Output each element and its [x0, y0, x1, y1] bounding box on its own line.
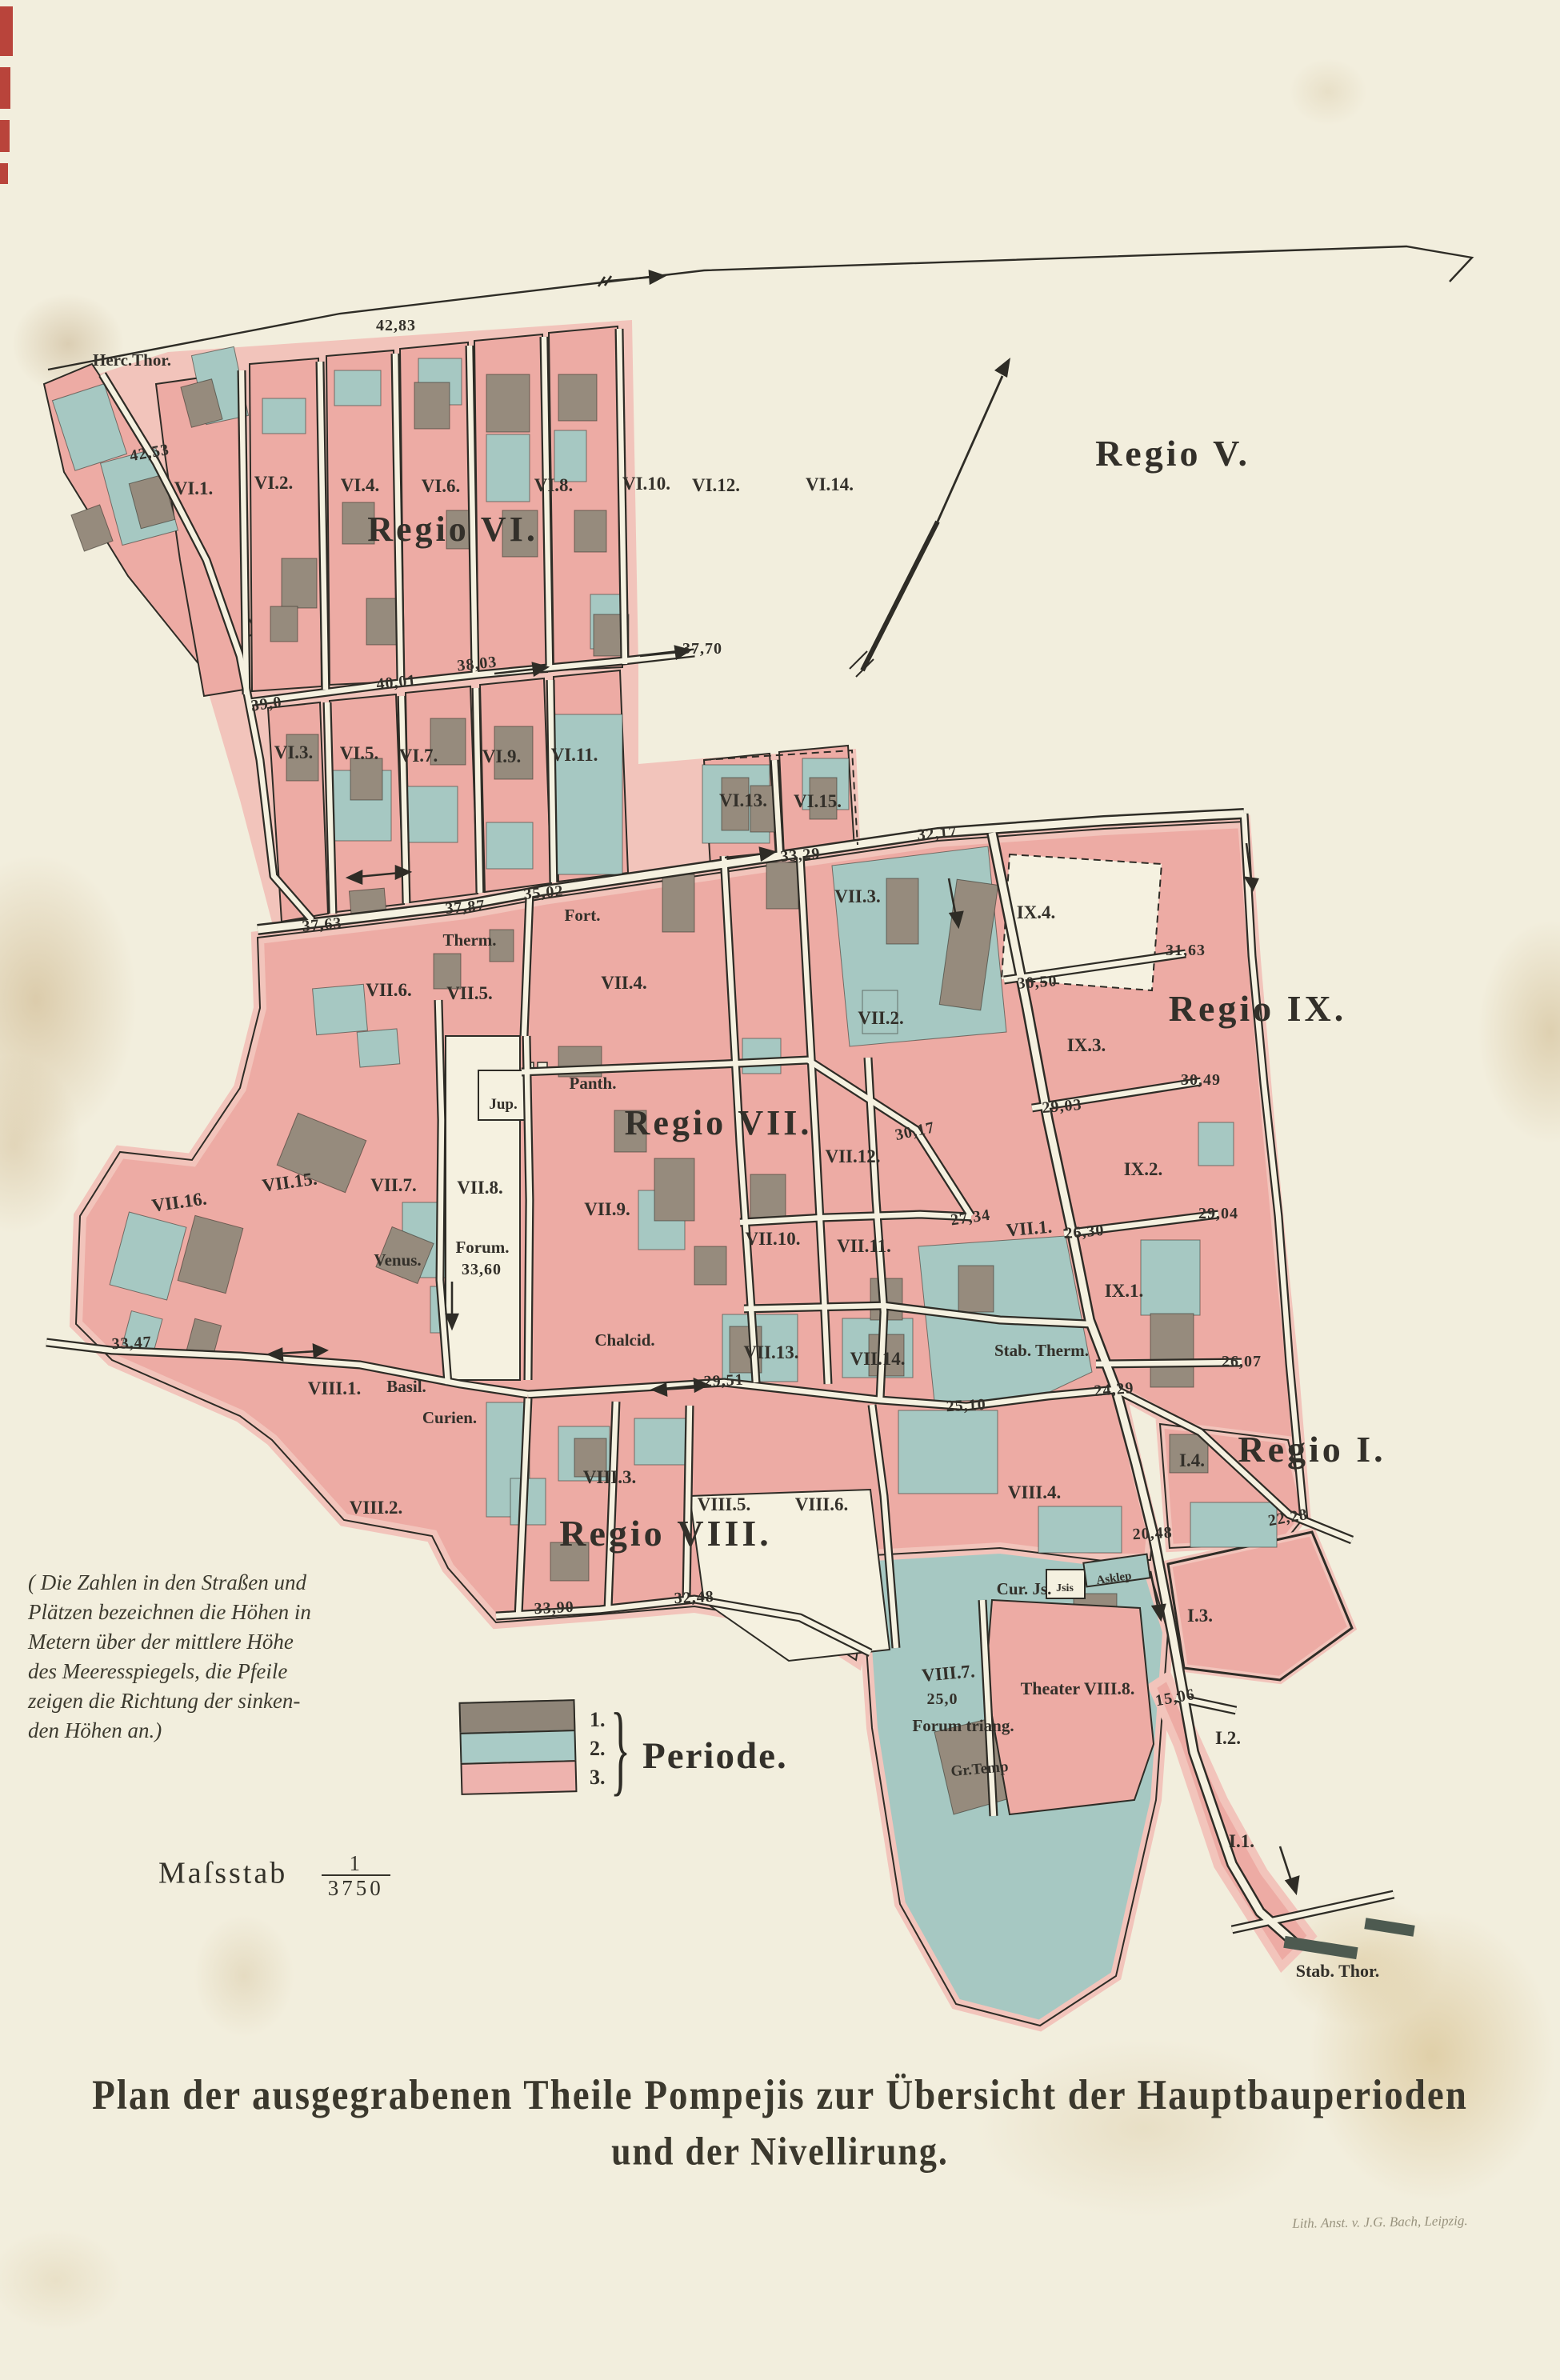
map-note: ( Die Zahlen in den Straßen und Plätzen …: [28, 1568, 428, 1746]
map-label-ins: VI.12.: [692, 475, 740, 495]
map-label-bldg: Chalcid.: [594, 1330, 654, 1350]
map-label-bldg: Basil.: [386, 1377, 426, 1396]
map-label-ins: VII.9.: [584, 1199, 630, 1219]
scale-word: Maſsstab: [158, 1857, 287, 1890]
map-label-ins: VI.10.: [622, 474, 670, 494]
title-line-1: Plan der ausgegrabenen Theile Pompejis z…: [0, 2071, 1560, 2119]
map-label-ins: VI.9.: [482, 746, 522, 766]
map-label-ins: VI.2.: [254, 473, 294, 493]
map-label-elev: 32,17: [917, 823, 958, 844]
map-label-elev: 25,0: [927, 1690, 958, 1708]
map-label-ins: VI.3.: [274, 742, 314, 762]
map-label-elev: 31,63: [1166, 942, 1206, 959]
map-label-elev: 30,49: [1181, 1071, 1221, 1089]
map-label-ins: VII.6.: [366, 980, 412, 1000]
map-label-elev: 33,60: [462, 1261, 502, 1278]
map-label-regio: Regio VII.: [625, 1103, 813, 1142]
map-label-ins: VI.15.: [794, 791, 842, 811]
map-label-elev: 30,50: [1017, 972, 1058, 992]
map-label-ins: VI.14.: [806, 474, 854, 494]
map-label-ins: VI.13.: [719, 790, 767, 810]
map-label-bldg: Jsis: [1056, 1582, 1074, 1594]
map-label-elev: 29,51: [703, 1371, 744, 1391]
map-label-ins: VIII.4.: [1008, 1482, 1061, 1502]
legend-swatches: [459, 1701, 578, 1795]
map-label-ins: VII.12.: [825, 1146, 880, 1166]
map-label-regio: Regio I.: [1238, 1429, 1386, 1470]
map-label-ins: IX.4.: [1017, 902, 1056, 922]
map-label-elev: 24,29: [1094, 1379, 1135, 1400]
legend-period-numbers: 1. 2. 3.: [590, 1706, 606, 1792]
map-label-elev: 25,10: [946, 1396, 986, 1416]
map-label-ins: VII.14.: [850, 1349, 905, 1369]
legend-swatch-period1: [458, 1699, 575, 1734]
scale-numerator: 1: [322, 1853, 390, 1874]
map-label-elev: 37,63: [302, 914, 343, 935]
map-label-elev: 26,07: [1222, 1353, 1262, 1370]
map-label-ins: VII.7.: [370, 1175, 417, 1195]
map-label-elev: 42,83: [376, 317, 416, 334]
scale-denominator: 3750: [322, 1874, 390, 1899]
note-line: Plätzen bezeichnen die Höhen in: [28, 1598, 428, 1627]
pompeii-plan: Regio V.Regio VI.Regio VII.Regio IX.Regi…: [0, 0, 1560, 2380]
map-label-elev: 26,30: [1064, 1222, 1106, 1242]
note-line: ( Die Zahlen in den Straßen und: [28, 1568, 428, 1598]
map-label-ins: IX.3.: [1067, 1035, 1106, 1055]
map-label-elev: 37,70: [682, 640, 722, 658]
legend-number: 1.: [590, 1706, 606, 1734]
map-label-ins: VIII.2.: [350, 1498, 402, 1518]
scale-statement: Maſsstab 1 3750: [158, 1853, 390, 1899]
map-label-elev: 33,47: [111, 1334, 152, 1354]
map-label-elev: 33,90: [534, 1598, 574, 1618]
map-label-ins: VII.2.: [858, 1008, 904, 1028]
map-label-elev: 35,02: [523, 882, 565, 903]
title-line-2: und der Nivellirung.: [0, 2129, 1560, 2174]
map-label-ins: VI.4.: [341, 475, 380, 495]
map-label-ins: IX.1.: [1105, 1281, 1144, 1301]
map-label-ins: I.2.: [1215, 1728, 1241, 1748]
map-label-ins: I.3.: [1187, 1606, 1213, 1626]
legend-number: 3.: [590, 1763, 606, 1792]
map-label-elev: 37,87: [445, 897, 486, 918]
map-label-ins: VII.13.: [743, 1342, 798, 1362]
map-label-regio: Regio VI.: [367, 510, 538, 549]
map-label-ins: VII.1.: [1006, 1217, 1053, 1241]
map-label-bldg: Forum triang.: [912, 1716, 1014, 1735]
map-label-ins: VII.8.: [457, 1178, 503, 1198]
map-label-bldg: Stab. Therm.: [994, 1341, 1089, 1360]
map-label-ins: VI.8.: [534, 475, 574, 495]
map-label-gate: Stab. Thor.: [1296, 1961, 1380, 1981]
map-label-bldg: Jup.: [489, 1096, 517, 1113]
scale-fraction: 1 3750: [322, 1853, 390, 1899]
legend-brace: }: [610, 1693, 630, 1809]
map-label-bldg: Theater VIII.8.: [1021, 1678, 1135, 1698]
map-label-elev: 32,48: [674, 1588, 714, 1608]
legend: 1. 2. 3. } Periode.: [460, 1696, 796, 1808]
map-label-bldg: Fort.: [565, 906, 601, 925]
map-label-ins: VII.3.: [834, 886, 881, 906]
map-label-bldg: Panth.: [570, 1074, 617, 1093]
map-label-ins: VI.11.: [551, 745, 598, 765]
map-label-ins: VIII.6.: [795, 1494, 848, 1514]
map-label-ins: VI.7.: [399, 746, 438, 766]
map-label-regio: Regio V.: [1095, 433, 1250, 474]
map-label-ins: IX.2.: [1124, 1159, 1163, 1179]
map-label-regio: Regio IX.: [1169, 988, 1347, 1029]
map-label-elev: 20,48: [1132, 1524, 1173, 1544]
map-label-bldg: Curien.: [422, 1408, 477, 1427]
note-line: des Meeresspiegels, die Pfeile: [28, 1657, 428, 1686]
map-label-ins: VII.11.: [837, 1236, 891, 1256]
legend-title: Periode.: [642, 1734, 788, 1778]
north-needle: [850, 358, 1010, 677]
map-label-ins: I.1.: [1229, 1831, 1254, 1851]
legend-swatch-period2: [459, 1730, 576, 1765]
map-page: Regio V.Regio VI.Regio VII.Regio IX.Regi…: [0, 0, 1560, 2380]
map-label-ins: VII.5.: [446, 983, 493, 1003]
page-title: Plan der ausgegrabenen Theile Pompejis z…: [0, 2074, 1560, 2172]
map-label-gate: Herc.Thor.: [93, 350, 171, 370]
map-label-ins: VII.10.: [745, 1229, 800, 1249]
legend-swatch-period3: [460, 1760, 577, 1795]
map-label-elev: 29,03: [1042, 1096, 1083, 1117]
map-label-ins: VI.6.: [422, 476, 461, 496]
map-label-ins: VI.5.: [340, 743, 379, 763]
map-label-bldg: Venus.: [374, 1250, 421, 1270]
map-label-ins: VIII.1.: [308, 1378, 361, 1398]
map-label-ins: VII.4.: [601, 973, 647, 993]
map-label-ins: I.4.: [1179, 1450, 1205, 1470]
map-label-ins: VIII.3.: [583, 1467, 636, 1487]
map-label-bldg: Forum.: [455, 1238, 509, 1257]
legend-number: 2.: [590, 1734, 606, 1763]
map-label-bldg: Therm.: [442, 930, 496, 950]
map-label-ins: VIII.5.: [698, 1494, 750, 1514]
note-line: den Höhen an.): [28, 1716, 428, 1746]
map-label-elev: 29,04: [1198, 1205, 1238, 1222]
map-label-bldg: Cur. Js.: [997, 1579, 1052, 1598]
map-label-ins: VI.1.: [174, 478, 214, 498]
map-label-elev: 33,29: [780, 845, 822, 866]
note-line: Metern über der mittlere Höhe: [28, 1627, 428, 1657]
map-label-regio: Regio VIII.: [559, 1513, 772, 1554]
note-line: zeigen die Richtung der sinken-: [28, 1686, 428, 1716]
